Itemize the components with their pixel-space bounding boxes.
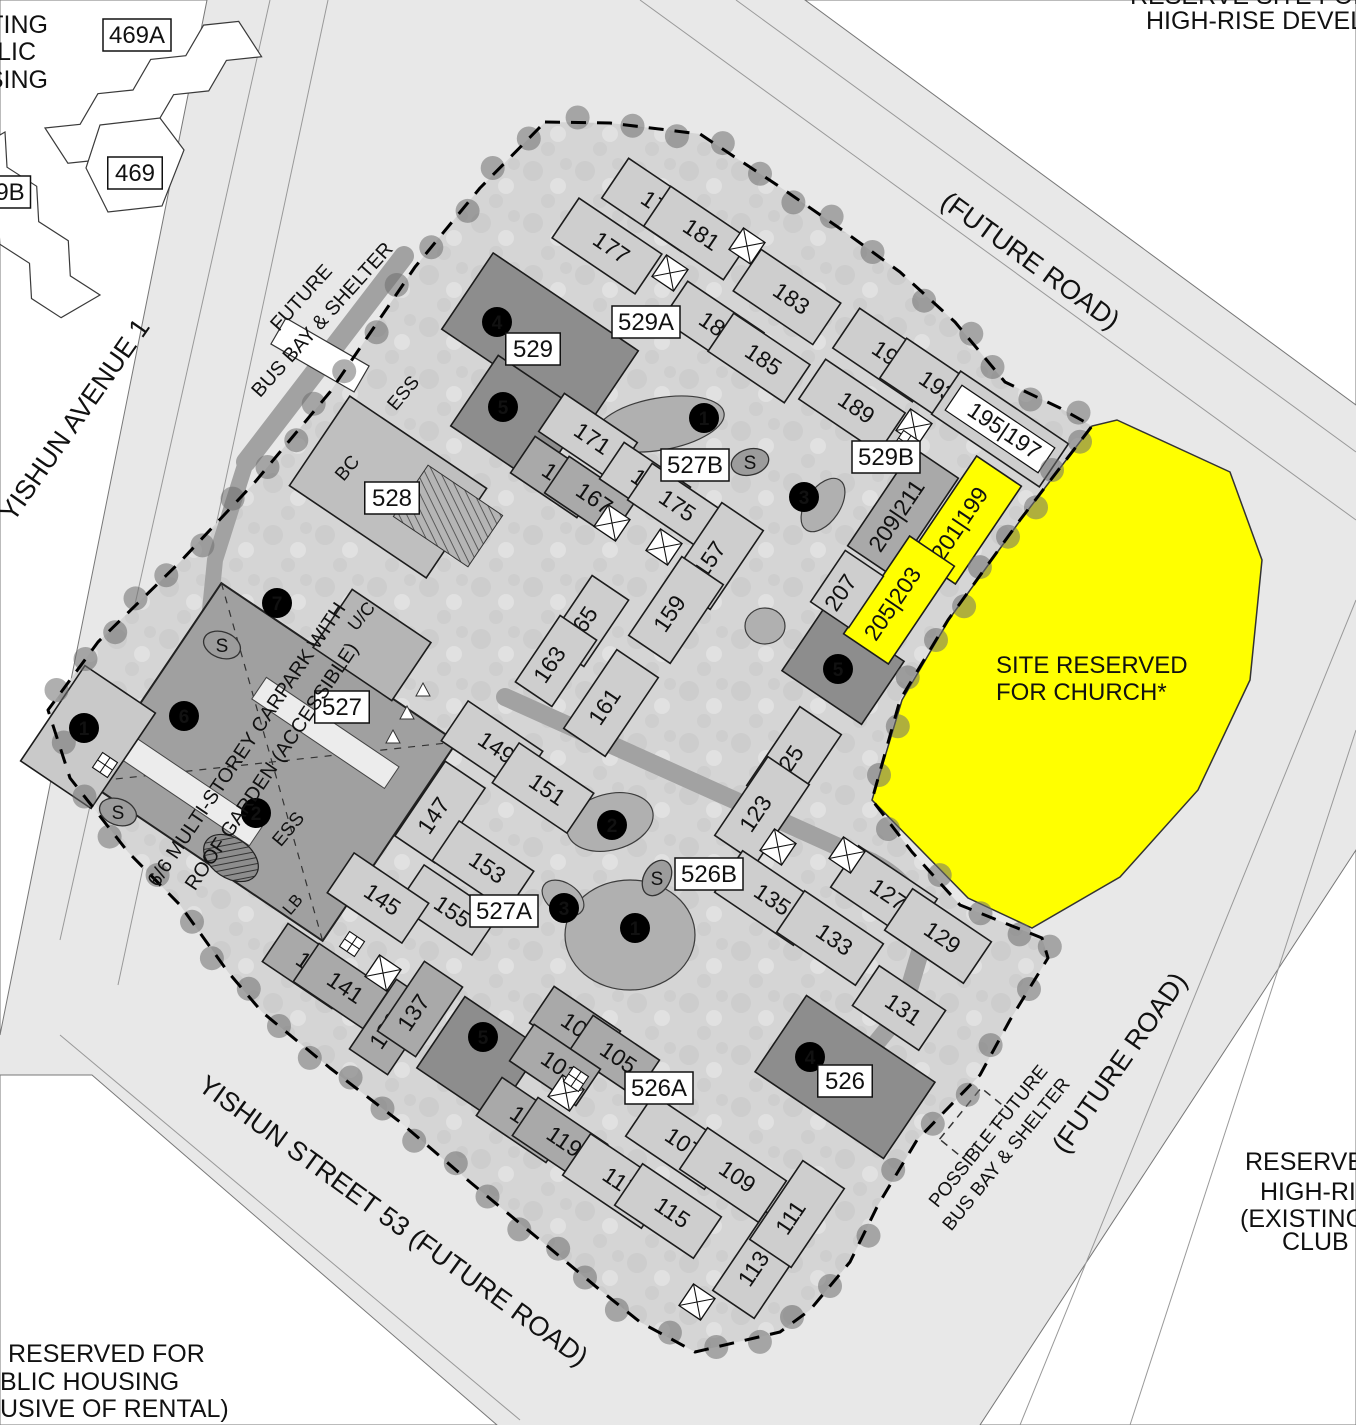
boundary-tree <box>820 205 844 229</box>
generated-map-layers: 177179181183187185189191193195|197209|21… <box>0 0 1356 1425</box>
boundary-tree <box>748 1330 772 1354</box>
reserved-housing-label-line3: USIVE OF RENTAL) <box>0 1395 229 1423</box>
reserve-site-bottom-label-line1: RESERVE <box>1245 1148 1356 1176</box>
reserved-housing-label-line2: BLIC HOUSING <box>0 1368 179 1396</box>
block-label-9B: 9B <box>0 179 25 206</box>
block-label-526A: 526A <box>631 1075 687 1102</box>
boundary-tree <box>969 901 993 925</box>
boundary-tree <box>748 162 772 186</box>
boundary-tree <box>876 817 900 841</box>
block-label-528: 528 <box>372 485 412 512</box>
numbered-circle-label-7: 7 <box>272 594 283 615</box>
site-plan-svg: 177179181183187185189191193195|197209|21… <box>0 0 1356 1425</box>
reserve-site-bottom-label-line4: CLUB G <box>1282 1228 1356 1256</box>
numbered-circle-label-3: 3 <box>799 488 810 509</box>
boundary-tree <box>74 647 98 671</box>
boundary-tree <box>867 763 891 787</box>
numbered-circle-label-1: 1 <box>630 919 641 940</box>
boundary-tree <box>1017 977 1041 1001</box>
block-label-469: 469 <box>115 160 155 187</box>
boundary-tree <box>711 131 735 155</box>
boundary-tree <box>1067 401 1091 425</box>
block-label-529A: 529A <box>618 309 674 336</box>
church-site-label-line1: SITE RESERVED <box>996 652 1188 679</box>
boundary-tree <box>979 1033 1003 1057</box>
boundary-tree <box>605 1298 629 1322</box>
numbered-circle-label-1: 1 <box>79 719 90 740</box>
landscape-area <box>745 608 785 644</box>
numbered-circle-label-6: 6 <box>179 707 190 728</box>
existing-housing-label-line3: SING <box>0 66 48 94</box>
numbered-circle-label-3: 3 <box>559 899 570 920</box>
boundary-tree <box>365 320 389 344</box>
block-label-527A: 527A <box>476 898 532 925</box>
numbered-circle-label-4: 4 <box>492 313 503 334</box>
boundary-tree <box>566 106 590 130</box>
boundary-tree <box>1018 388 1042 412</box>
boundary-tree <box>781 190 805 214</box>
reserve-site-bottom-label-line2: HIGH-RIS <box>1260 1178 1356 1206</box>
numbered-circle-label-5: 5 <box>498 398 509 419</box>
s-marker-letter: S <box>216 636 229 657</box>
boundary-tree <box>45 678 69 702</box>
s-marker-letter: S <box>744 453 757 474</box>
block-label-527B: 527B <box>667 452 723 479</box>
boundary-tree <box>665 124 689 148</box>
boundary-tree <box>1068 430 1092 454</box>
boundary-tree <box>371 1097 395 1121</box>
s-marker-letter: S <box>112 803 125 824</box>
numbered-circle-label-5: 5 <box>478 1028 489 1049</box>
site-plan-map: 177179181183187185189191193195|197209|21… <box>0 0 1356 1425</box>
reserve-site-top-label-line2: HIGH-RISE DEVELO <box>1146 7 1356 35</box>
block-label-526: 526 <box>825 1068 865 1095</box>
existing-housing-label-line1: TING <box>0 11 48 39</box>
s-marker-letter: S <box>651 869 664 890</box>
block-label-469A: 469A <box>109 22 165 49</box>
boundary-tree <box>200 946 224 970</box>
reserved-housing-label-line1: RESERVED FOR <box>8 1340 205 1368</box>
numbered-circle-label-5: 5 <box>833 660 844 681</box>
block-label-526B: 526B <box>681 861 737 888</box>
block-label-529B: 529B <box>858 444 914 471</box>
numbered-circle-label-4: 4 <box>805 1048 816 1069</box>
block-label-529: 529 <box>513 336 553 363</box>
existing-housing-label-line2: LIC <box>0 38 36 66</box>
boundary-tree <box>881 1158 905 1182</box>
boundary-tree <box>704 1335 728 1359</box>
boundary-tree <box>339 1066 363 1090</box>
numbered-circle-label-2: 2 <box>607 816 618 837</box>
boundary-tree <box>98 825 122 849</box>
numbered-circle-label-1: 1 <box>699 409 710 430</box>
church-site-label-line2: FOR CHURCH* <box>996 679 1167 706</box>
